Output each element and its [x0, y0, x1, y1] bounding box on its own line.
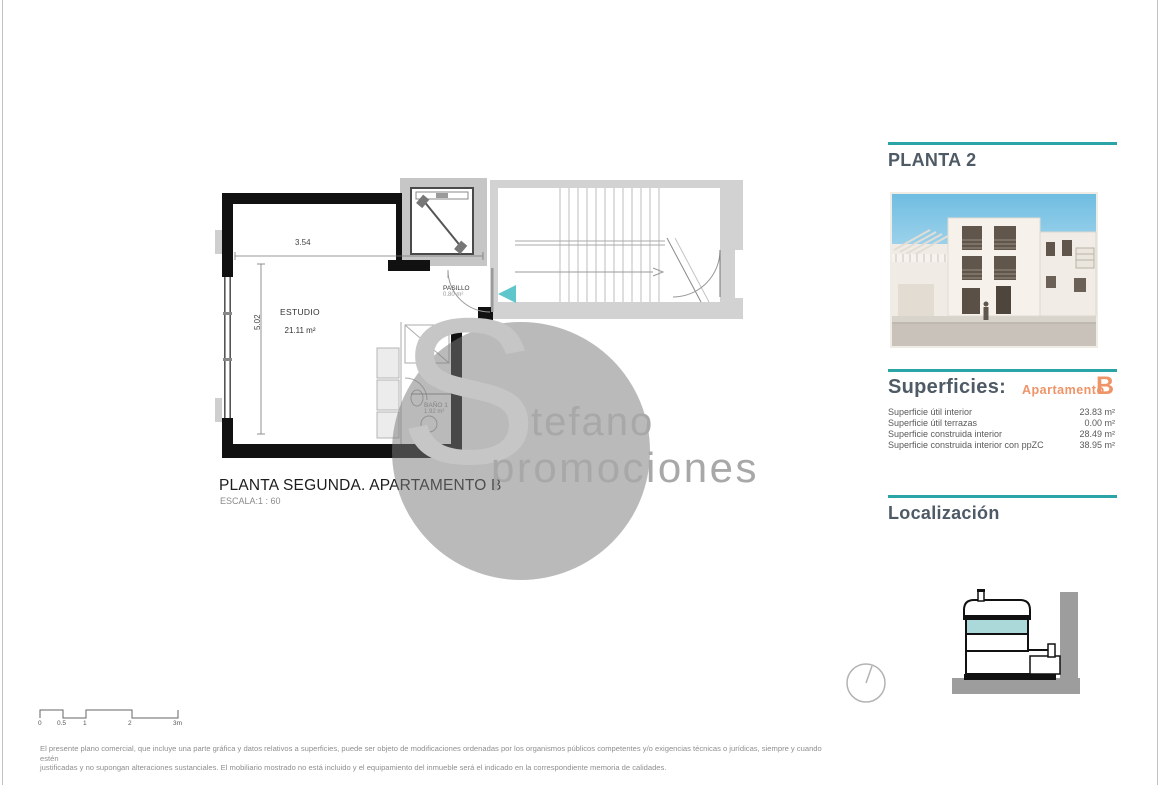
apartment-label: Apartamento: [1022, 383, 1105, 397]
floor-title: PLANTA 2: [888, 150, 976, 171]
scale-tick: 0.5: [57, 720, 66, 727]
scale-tick: 0: [38, 720, 42, 727]
dimension-width: 3.54: [295, 238, 311, 247]
room-estudio-name: ESTUDIO: [280, 307, 320, 317]
plan-sheet: 3.54 5.02 ESTUDIO 21.11 m² PASILLO 0.80 …: [0, 0, 1170, 785]
plan-scale-label: ESCALA:1 : 60: [220, 496, 281, 506]
superficies-row: Superficie útil terrazas 0.00 m²: [888, 418, 1115, 429]
divider-superficies: [888, 369, 1117, 372]
superficies-row-value: 23.83 m²: [1079, 407, 1115, 417]
north-indicator-icon: [845, 662, 887, 704]
superficies-heading: Superficies:: [888, 376, 1006, 399]
building-render-image: [890, 192, 1098, 348]
superficies-row-value: 0.00 m²: [1084, 418, 1115, 428]
superficies-row-label: Superficie construida interior con ppZC: [888, 440, 1044, 450]
location-section-diagram: [950, 588, 1090, 698]
superficies-row: Superficie construida interior 28.49 m²: [888, 429, 1115, 440]
room-estudio-label: ESTUDIO 21.11 m²: [255, 302, 345, 338]
divider-localizacion: [888, 495, 1117, 498]
disclaimer-line2: justificadas y no supongan alteraciones …: [40, 763, 830, 773]
sheet-right-edge: [1157, 0, 1158, 785]
scale-tick: 1: [83, 720, 87, 727]
superficies-row-value: 28.49 m²: [1079, 429, 1115, 439]
disclaimer-line1: El presente plano comercial, que incluye…: [40, 744, 830, 763]
localizacion-heading: Localización: [888, 503, 1000, 524]
scale-bar-drawing: [36, 702, 188, 720]
divider-top: [888, 142, 1117, 145]
watermark-text-line1: tefano: [531, 400, 654, 445]
apartment-letter: B: [1096, 372, 1114, 401]
sheet-left-edge: [2, 0, 3, 785]
disclaimer-text: El presente plano comercial, que incluye…: [40, 744, 830, 773]
scale-tick: 3m: [173, 720, 182, 727]
superficies-row: Superficie útil interior 23.83 m²: [888, 407, 1115, 418]
superficies-row-label: Superficie útil interior: [888, 407, 972, 417]
scale-tick: 2: [128, 720, 132, 727]
superficies-row-label: Superficie construida interior: [888, 429, 1002, 439]
room-estudio-area: 21.11 m²: [285, 326, 316, 335]
superficies-row-value: 38.95 m²: [1079, 440, 1115, 450]
graphic-scale-bar: 0 0.5 1 2 3m: [36, 702, 188, 730]
watermark-text-line2: promociones: [491, 444, 759, 492]
superficies-row: Superficie construida interior con ppZC …: [888, 440, 1115, 451]
superficies-row-label: Superficie útil terrazas: [888, 418, 977, 428]
